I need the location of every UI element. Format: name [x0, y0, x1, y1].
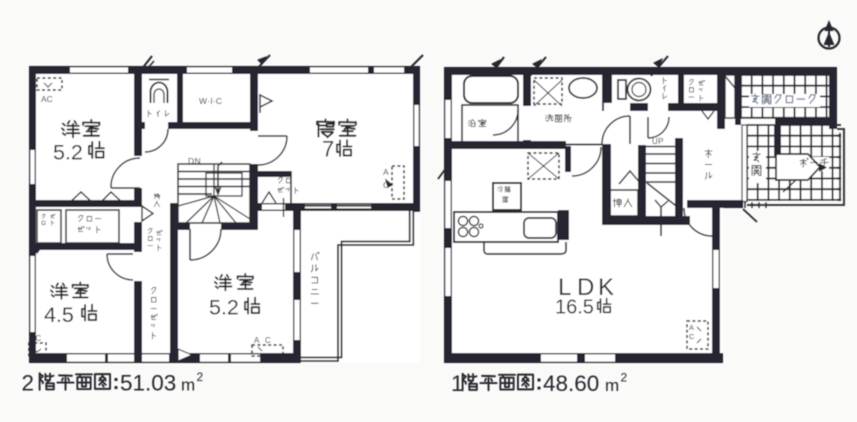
- svg-text:DN: DN: [188, 156, 201, 166]
- svg-text:2: 2: [621, 371, 628, 385]
- svg-text:m: m: [605, 376, 619, 395]
- svg-text:5.2: 5.2: [53, 141, 83, 165]
- svg-text:2: 2: [22, 371, 35, 396]
- svg-text:A: A: [383, 167, 389, 177]
- svg-text:C: C: [265, 336, 271, 345]
- svg-text:51.03: 51.03: [120, 371, 176, 396]
- svg-text:1: 1: [451, 371, 464, 396]
- svg-text:C: C: [689, 332, 695, 341]
- svg-text:2: 2: [197, 370, 204, 384]
- svg-text:W·I·C: W·I·C: [199, 96, 222, 106]
- svg-text:AC: AC: [41, 94, 53, 104]
- svg-text:5.2: 5.2: [209, 296, 239, 320]
- svg-text:m: m: [181, 376, 195, 395]
- svg-text:16.5: 16.5: [555, 297, 594, 319]
- svg-text:7: 7: [322, 137, 334, 162]
- svg-text:A: A: [254, 336, 260, 345]
- svg-text:UP: UP: [652, 137, 664, 146]
- svg-text:K: K: [598, 274, 614, 301]
- svg-text::: :: [536, 372, 543, 395]
- svg-text:AC: AC: [30, 334, 41, 343]
- svg-text:4.5: 4.5: [44, 303, 74, 327]
- svg-text:A: A: [689, 323, 694, 332]
- svg-text::: :: [113, 371, 120, 394]
- svg-text:48.60: 48.60: [543, 371, 599, 396]
